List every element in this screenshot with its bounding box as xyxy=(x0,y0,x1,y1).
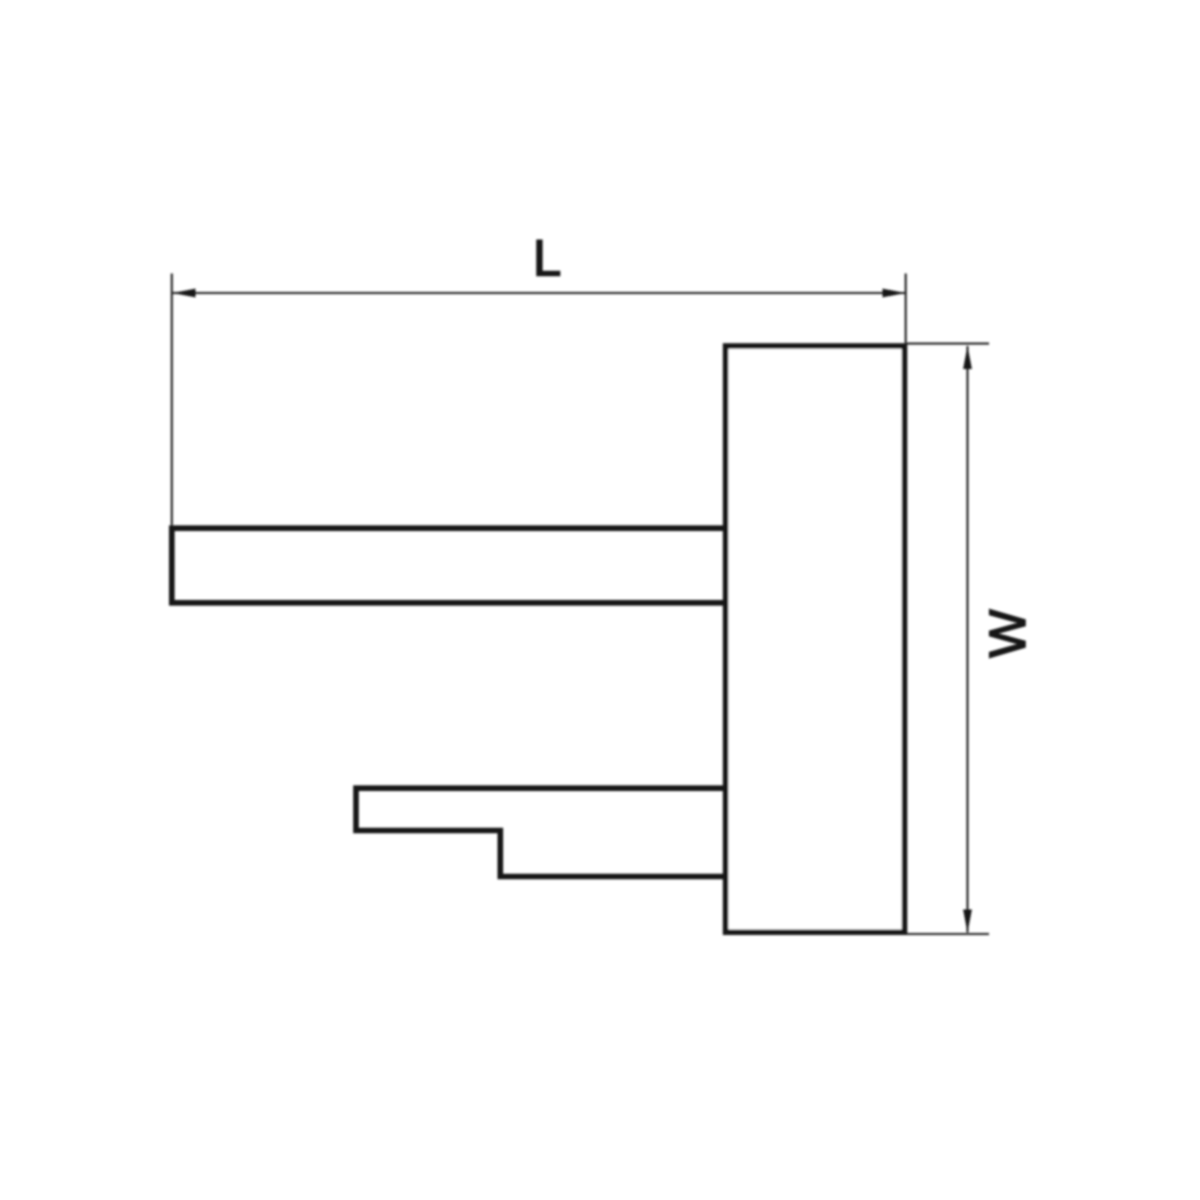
svg-text:L: L xyxy=(533,230,561,287)
svg-text:W: W xyxy=(979,609,1036,657)
